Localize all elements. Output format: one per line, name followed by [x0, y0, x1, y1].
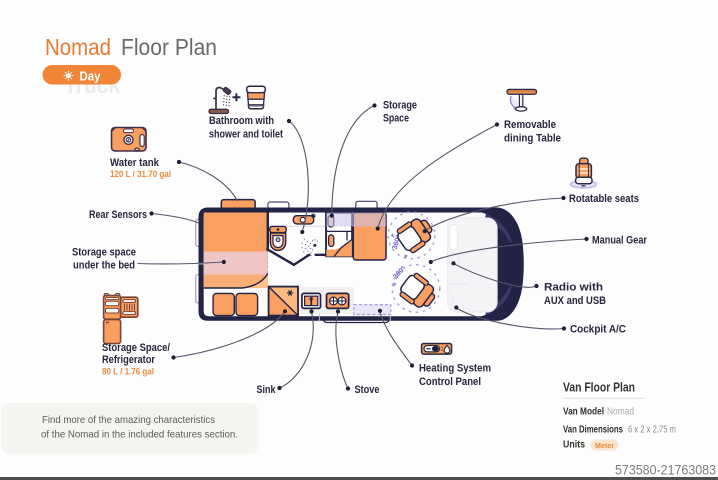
svg-text:Radio with: Radio with — [544, 282, 603, 294]
svg-text:Water tank: Water tank — [110, 157, 160, 169]
svg-text:AUX and USB: AUX and USB — [544, 295, 606, 307]
svg-text:Storage space: Storage space — [72, 247, 136, 259]
svg-text:80 L / 1.76 gal: 80 L / 1.76 gal — [102, 367, 154, 377]
svg-text:Find more of the amazing chara: Find more of the amazing characteristics — [42, 415, 215, 426]
svg-text:Nomad: Nomad — [607, 407, 634, 418]
svg-text:Floor Plan: Floor Plan — [121, 34, 217, 60]
svg-text:Sink: Sink — [257, 384, 277, 396]
svg-text:Removable: Removable — [504, 119, 556, 131]
svg-text:Rear Sensors: Rear Sensors — [89, 209, 147, 221]
svg-text:Day: Day — [80, 69, 101, 83]
svg-text:573580-21763083: 573580-21763083 — [615, 463, 716, 478]
svg-text:Rotatable seats: Rotatable seats — [569, 193, 639, 205]
svg-text:Control Panel: Control Panel — [419, 376, 481, 388]
svg-text:Bathroom with: Bathroom with — [209, 115, 274, 127]
svg-text:Storage Space/: Storage Space/ — [102, 342, 170, 354]
svg-text:Nomad: Nomad — [45, 34, 111, 60]
svg-text:Heating System: Heating System — [419, 363, 491, 375]
svg-text:Van Floor Plan: Van Floor Plan — [563, 380, 635, 395]
svg-text:Storage: Storage — [383, 100, 417, 112]
svg-text:dining Table: dining Table — [504, 133, 561, 145]
svg-text:Meter: Meter — [595, 441, 614, 450]
svg-text:Stove: Stove — [355, 384, 380, 396]
svg-text:6 x 2 x 2.75 m: 6 x 2 x 2.75 m — [628, 425, 676, 436]
svg-text:Space: Space — [383, 113, 409, 125]
svg-text:Units: Units — [563, 440, 585, 451]
svg-text:Van Dimensions: Van Dimensions — [563, 425, 623, 436]
svg-text:of the Nomad in the included f: of the Nomad in the included features se… — [41, 430, 238, 441]
svg-text:Cockpit A/C: Cockpit A/C — [570, 324, 626, 336]
svg-text:120 L / 31.70 gal: 120 L / 31.70 gal — [110, 169, 171, 179]
svg-text:Van Model: Van Model — [563, 407, 604, 418]
svg-text:under the bed: under the bed — [73, 260, 135, 272]
svg-text:shower and toilet: shower and toilet — [209, 129, 283, 141]
svg-text:Refrigerator: Refrigerator — [102, 354, 156, 366]
svg-text:Manual Gear: Manual Gear — [592, 235, 648, 247]
